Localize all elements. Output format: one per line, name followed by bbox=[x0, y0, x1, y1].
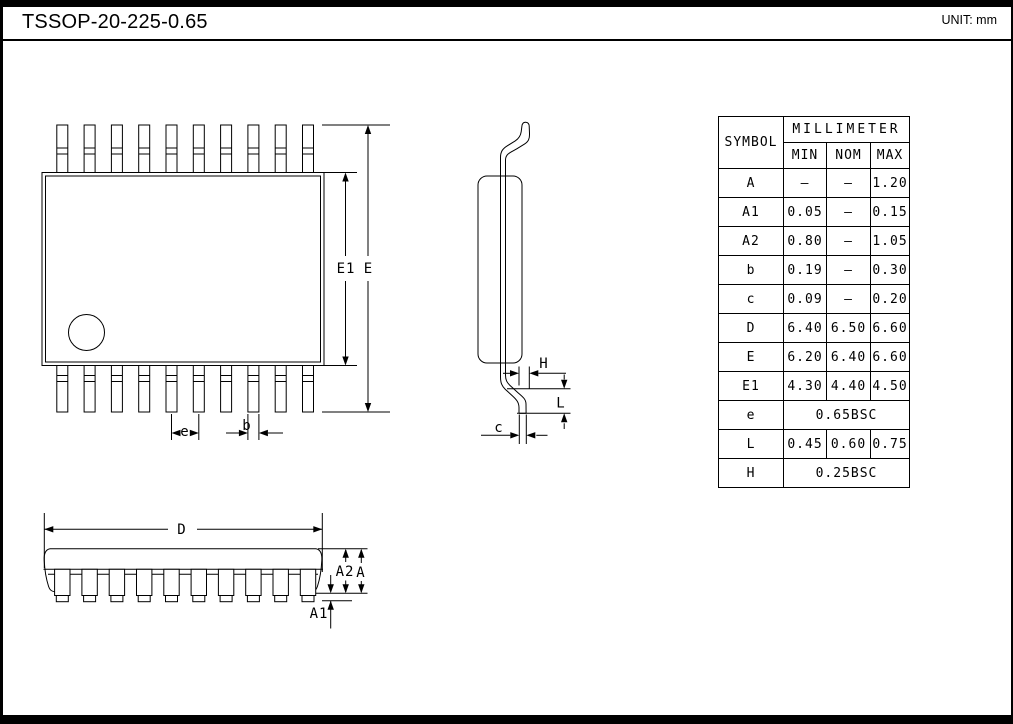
dim-label-E: E bbox=[364, 261, 373, 277]
table-cell: 6.50 bbox=[827, 314, 871, 343]
dim-E: E bbox=[322, 125, 390, 412]
dim-D: D bbox=[44, 513, 322, 572]
front-view: D A2 A bbox=[44, 513, 368, 629]
table-row: D 6.40 6.50 6.60 bbox=[719, 314, 910, 343]
table-cell: — bbox=[827, 169, 871, 198]
table-cell: 0.30 bbox=[871, 256, 910, 285]
table-cell: 1.05 bbox=[871, 227, 910, 256]
table-cell: 0.45 bbox=[784, 430, 827, 459]
table-row: b 0.19 — 0.30 bbox=[719, 256, 910, 285]
table-cell: 6.60 bbox=[871, 314, 910, 343]
table-row: A1 0.05 — 0.15 bbox=[719, 198, 910, 227]
table-cell: 0.80 bbox=[784, 227, 827, 256]
symbol-cell: E1 bbox=[719, 372, 784, 401]
table-cell: 1.20 bbox=[871, 169, 910, 198]
symbol-cell: A1 bbox=[719, 198, 784, 227]
symbol-cell: e bbox=[719, 401, 784, 430]
table-row: c 0.09 — 0.20 bbox=[719, 285, 910, 314]
dim-b: b bbox=[226, 414, 283, 440]
dim-L: L bbox=[507, 375, 571, 430]
table-cell: — bbox=[827, 256, 871, 285]
table-header-min: MIN bbox=[784, 143, 827, 169]
dim-label-b: b bbox=[242, 418, 251, 434]
table-cell: 6.60 bbox=[871, 343, 910, 372]
table-row: e 0.65BSC bbox=[719, 401, 910, 430]
dim-label-A1: A1 bbox=[310, 606, 329, 622]
dim-label-L: L bbox=[556, 396, 565, 412]
table-cell: 0.05 bbox=[784, 198, 827, 227]
table-cell: 0.19 bbox=[784, 256, 827, 285]
symbol-cell: A2 bbox=[719, 227, 784, 256]
table-header-millimeter: MILLIMETER bbox=[784, 117, 910, 143]
side-view: H L c bbox=[478, 122, 571, 444]
datasheet-page: TSSOP-20-225-0.65 UNIT: mm bbox=[0, 0, 1013, 724]
dim-label-H: H bbox=[539, 356, 548, 372]
top-view-body bbox=[42, 173, 324, 366]
table-cell: 0.15 bbox=[871, 198, 910, 227]
symbol-cell: E bbox=[719, 343, 784, 372]
symbol-cell: c bbox=[719, 285, 784, 314]
table-cell: 4.50 bbox=[871, 372, 910, 401]
symbol-cell: H bbox=[719, 459, 784, 488]
table-row: A2 0.80 — 1.05 bbox=[719, 227, 910, 256]
table-cell: — bbox=[784, 169, 827, 198]
dim-label-A2: A2 bbox=[336, 564, 355, 580]
dim-e-pitch: e bbox=[172, 414, 199, 440]
dim-c: c bbox=[481, 415, 548, 445]
table-cell: 0.60 bbox=[827, 430, 871, 459]
side-view-lead bbox=[478, 122, 530, 413]
table-row: H 0.25BSC bbox=[719, 459, 910, 488]
table-row: L 0.45 0.60 0.75 bbox=[719, 430, 910, 459]
table-cell-span: 0.25BSC bbox=[784, 459, 910, 488]
symbol-cell: b bbox=[719, 256, 784, 285]
table-cell: — bbox=[827, 285, 871, 314]
table-header-nom: NOM bbox=[827, 143, 871, 169]
symbol-cell: A bbox=[719, 169, 784, 198]
table-cell: 0.09 bbox=[784, 285, 827, 314]
dim-H: H bbox=[503, 356, 566, 389]
dim-label-c: c bbox=[494, 420, 503, 436]
top-view-pins-lower bbox=[57, 366, 314, 413]
top-view: E1 E e bbox=[42, 125, 390, 440]
table-cell-span: 0.65BSC bbox=[784, 401, 910, 430]
dim-A: A bbox=[356, 549, 365, 594]
table-cell: 6.20 bbox=[784, 343, 827, 372]
table-cell: — bbox=[827, 227, 871, 256]
table-cell: 4.40 bbox=[827, 372, 871, 401]
symbol-cell: L bbox=[719, 430, 784, 459]
table-cell: 6.40 bbox=[784, 314, 827, 343]
dim-E1: E1 bbox=[324, 173, 357, 366]
table-header-symbol: SYMBOL bbox=[719, 117, 784, 169]
table-cell: — bbox=[827, 198, 871, 227]
table-cell: 0.20 bbox=[871, 285, 910, 314]
dim-label-e: e bbox=[180, 424, 189, 440]
table-row: E 6.20 6.40 6.60 bbox=[719, 343, 910, 372]
dim-label-A: A bbox=[356, 565, 365, 581]
dim-label-E1: E1 bbox=[337, 261, 356, 277]
table-row: A — — 1.20 bbox=[719, 169, 910, 198]
symbol-cell: D bbox=[719, 314, 784, 343]
table-cell: 6.40 bbox=[827, 343, 871, 372]
dim-label-D: D bbox=[177, 522, 186, 538]
table-cell: 0.75 bbox=[871, 430, 910, 459]
table-cell: 4.30 bbox=[784, 372, 827, 401]
dimension-table: SYMBOL MILLIMETER MIN NOM MAX A — — 1.20… bbox=[718, 116, 910, 488]
top-view-pins-upper bbox=[57, 125, 314, 173]
table-header-max: MAX bbox=[871, 143, 910, 169]
table-row: E1 4.30 4.40 4.50 bbox=[719, 372, 910, 401]
